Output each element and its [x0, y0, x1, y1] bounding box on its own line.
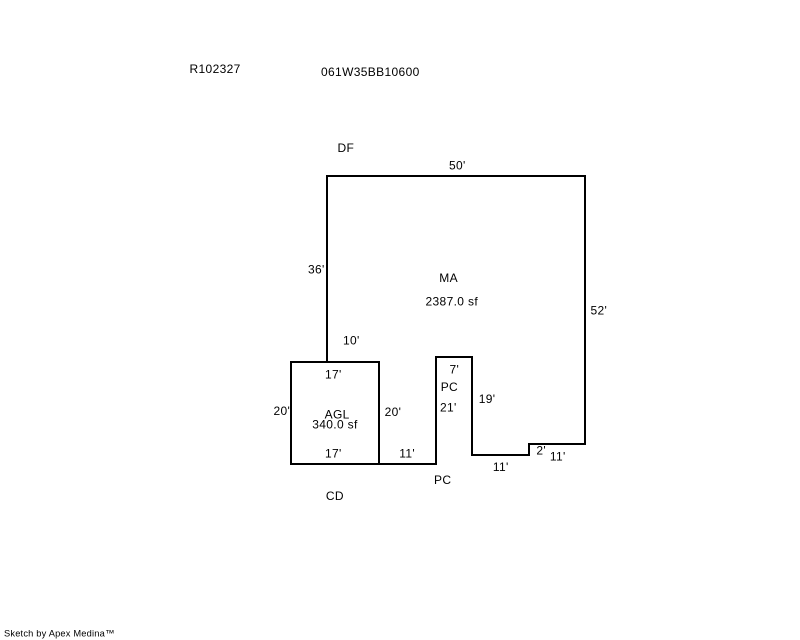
- svg-text:R102327: R102327: [190, 62, 241, 76]
- svg-text:CD: CD: [326, 489, 344, 503]
- svg-text:50': 50': [449, 158, 466, 172]
- svg-text:17': 17': [325, 447, 342, 461]
- svg-text:36': 36': [308, 263, 325, 277]
- svg-text:19': 19': [479, 392, 496, 406]
- svg-text:11': 11': [493, 460, 509, 474]
- svg-text:061W35BB10600: 061W35BB10600: [321, 65, 420, 79]
- svg-text:20': 20': [385, 405, 402, 419]
- svg-text:11': 11': [550, 449, 566, 463]
- svg-text:17': 17': [325, 368, 342, 382]
- svg-text:10': 10': [343, 334, 360, 348]
- svg-text:MA: MA: [439, 271, 458, 285]
- svg-text:PC: PC: [441, 380, 458, 394]
- svg-text:340.0 sf: 340.0 sf: [312, 418, 358, 432]
- svg-text:2': 2': [536, 443, 546, 457]
- svg-text:52': 52': [591, 304, 608, 318]
- svg-text:DF: DF: [338, 141, 355, 155]
- svg-text:21': 21': [440, 401, 457, 415]
- svg-text:Sketch by Apex Medina™: Sketch by Apex Medina™: [4, 629, 114, 639]
- svg-text:2387.0 sf: 2387.0 sf: [426, 295, 479, 309]
- svg-text:PC: PC: [434, 473, 451, 487]
- svg-text:11': 11': [399, 447, 415, 461]
- svg-text:7': 7': [450, 363, 460, 377]
- svg-text:20': 20': [274, 404, 291, 418]
